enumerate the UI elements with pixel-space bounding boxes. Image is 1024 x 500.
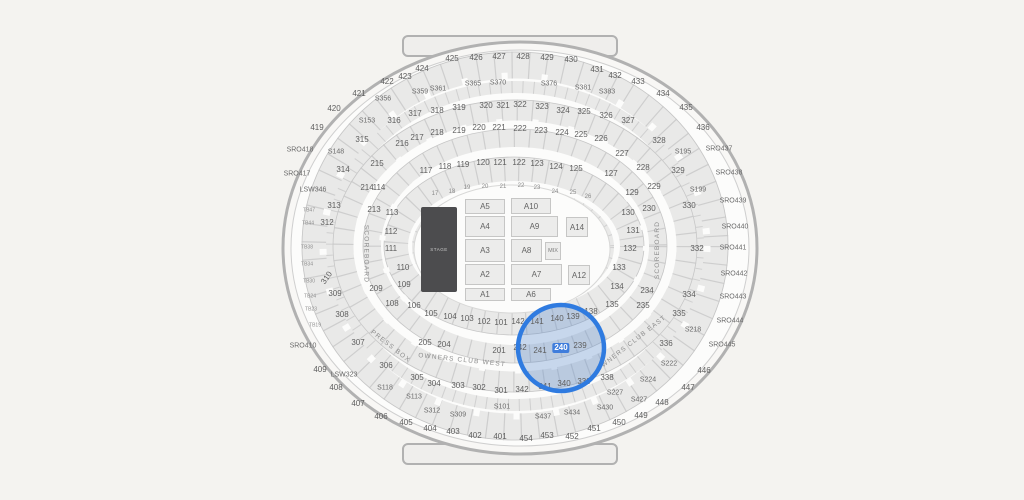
premium-label-scoreboard: SCOREBOARD: [362, 225, 369, 283]
premium-label-press-box: PRESS BOX: [369, 330, 411, 365]
section-240-selected[interactable]: 240: [552, 343, 569, 353]
venue-seating-map: { "page": { "background": "#f4f3f0" }, "…: [0, 0, 1024, 500]
premium-labels-layer: PRESS BOXOWNERS CLUB WESTOWNERS CLUB EAS…: [0, 0, 1024, 500]
premium-label-scoreboard: SCOREBOARD: [655, 221, 662, 279]
premium-label-owners-club-east: OWNERS CLUB EAST: [596, 315, 668, 373]
premium-label-owners-club-west: OWNERS CLUB WEST: [418, 353, 506, 369]
